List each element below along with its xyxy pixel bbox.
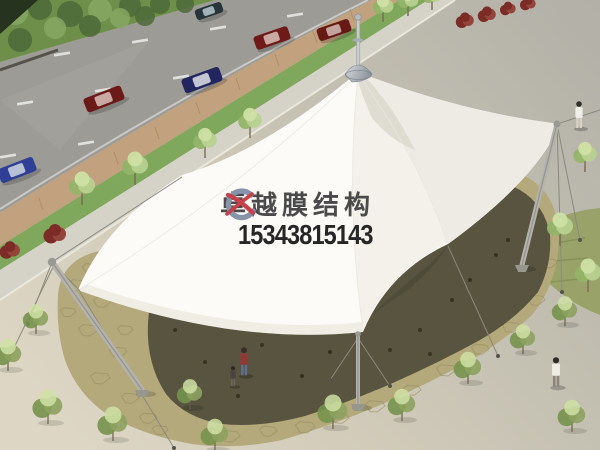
right-mast-node: [554, 121, 561, 128]
shrub-shadow: [182, 405, 204, 411]
finial-disc: [353, 38, 364, 42]
hedge-bush: [79, 15, 101, 37]
person-head: [241, 347, 247, 353]
shrub-foliage: [558, 296, 572, 310]
hedge-bush: [8, 28, 32, 52]
person-leg: [233, 378, 235, 386]
person-leg: [241, 364, 244, 376]
shrub-foliage: [564, 400, 580, 416]
hedge-bush: [135, 6, 155, 26]
shrub-foliage: [105, 406, 122, 423]
red-bush: [5, 241, 16, 252]
shrub-foliage: [394, 389, 410, 405]
anchor-point: [328, 378, 332, 382]
red-bush: [482, 6, 492, 16]
person-leg: [557, 375, 560, 387]
architectural-rendering: 卓越膜结构 15343815143: [0, 0, 600, 450]
shrub-shadow: [38, 420, 64, 426]
anchor-point: [560, 290, 564, 294]
red-bush: [49, 224, 61, 236]
lawn-tree-foliage: [578, 142, 592, 156]
debris-stone: [236, 394, 240, 398]
left-mast-node: [48, 258, 56, 266]
finial-pole: [357, 20, 360, 66]
hedge-bush: [44, 17, 66, 39]
shrub-foliage: [460, 352, 476, 368]
debris-stone: [468, 278, 472, 282]
person-leg: [231, 378, 233, 386]
shrub-foliage: [29, 304, 43, 318]
street-tree-foliage: [243, 108, 257, 122]
shrub-shadow: [563, 428, 587, 434]
person-leg: [580, 117, 582, 128]
shrub-foliage: [0, 339, 16, 355]
debris-stone: [418, 328, 422, 332]
person-leg: [553, 375, 556, 387]
shrub-shadow: [28, 330, 50, 336]
street-tree-foliage: [75, 172, 90, 187]
person-head: [553, 357, 559, 363]
hedge-bush: [110, 8, 130, 28]
red-bush: [460, 12, 470, 22]
anchor-point: [496, 354, 500, 358]
anchor-point: [578, 238, 582, 242]
person-torso: [230, 371, 235, 379]
person-torso: [575, 107, 582, 118]
front-strut-mast-node: [355, 331, 361, 337]
debris-stone: [260, 343, 264, 347]
shrub-shadow: [323, 425, 349, 431]
debris-stone: [388, 348, 392, 352]
shrub-foliage: [325, 394, 342, 411]
lawn-tree-foliage: [581, 259, 596, 274]
debris-stone: [328, 350, 332, 354]
shrub-shadow: [0, 367, 23, 373]
shrub-foliage: [516, 324, 530, 338]
debris-stone: [203, 360, 207, 364]
person-head: [231, 366, 235, 370]
person-torso: [240, 353, 248, 365]
anchor-point: [388, 384, 392, 388]
shrub-shadow: [103, 437, 129, 443]
shrub-shadow: [557, 322, 579, 328]
debris-stone: [300, 374, 304, 378]
shrub-foliage: [183, 379, 197, 393]
debris-stone: [506, 238, 510, 242]
debris-stone: [428, 352, 432, 356]
shrub-foliage: [40, 389, 57, 406]
street-tree-foliage: [198, 128, 212, 142]
shrub-shadow: [459, 380, 483, 386]
shrub-foliage: [207, 419, 223, 435]
debris-stone: [173, 328, 177, 332]
shrub-shadow: [515, 350, 537, 356]
finial-ball: [355, 14, 361, 20]
debris-stone: [450, 298, 454, 302]
person-leg: [245, 364, 248, 376]
shrub-shadow: [393, 417, 417, 423]
person-head: [576, 101, 582, 107]
person-torso: [552, 364, 560, 376]
lawn-tree-foliage: [553, 213, 568, 228]
street-tree-foliage: [128, 152, 143, 167]
debris-stone: [494, 253, 498, 257]
red-bush: [504, 2, 512, 10]
person-leg: [576, 117, 578, 128]
scene-canvas: [0, 0, 600, 450]
anchor-point: [172, 446, 176, 450]
